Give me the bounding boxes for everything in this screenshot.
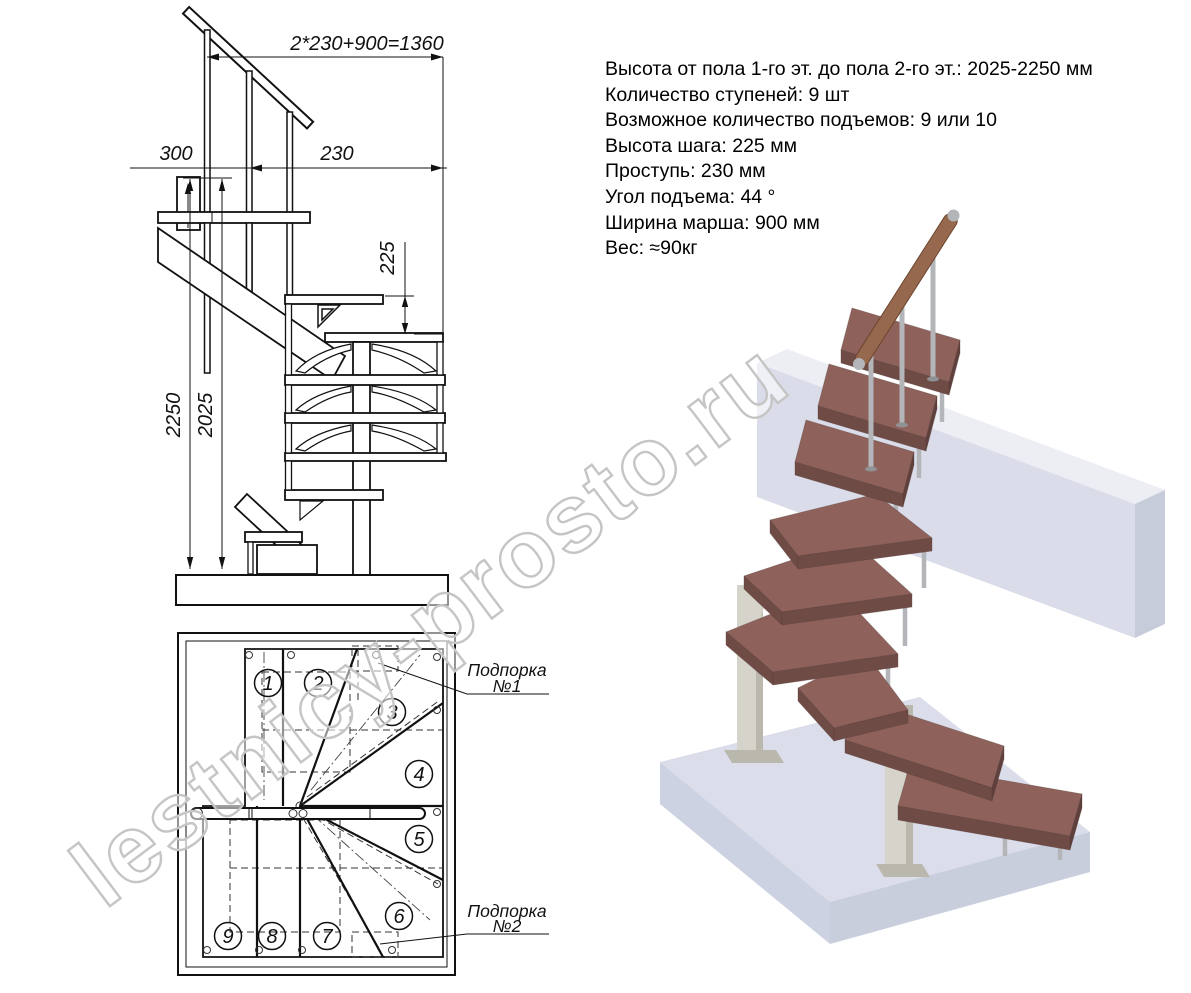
render-3d bbox=[660, 210, 1165, 945]
spec-line: Количество ступеней: 9 шт bbox=[605, 83, 1145, 109]
dim-rise: 225 bbox=[377, 240, 399, 275]
support2-number: №2 bbox=[493, 916, 522, 936]
spec-line: Проступь: 230 мм bbox=[605, 159, 1145, 185]
dim-height-max: 2250 bbox=[163, 393, 185, 439]
step-number: 7 bbox=[321, 926, 333, 948]
dim-total-width: 2*230+900=1360 bbox=[289, 33, 444, 55]
spec-line: Вес: ≈90кг bbox=[605, 236, 1145, 262]
spec-line: Высота от пола 1-го эт. до пола 2-го эт.… bbox=[605, 57, 1145, 83]
spec-line: Ширина марша: 900 мм bbox=[605, 211, 1145, 237]
dim-height-min: 2025 bbox=[195, 392, 217, 438]
step-number: 9 bbox=[222, 926, 233, 948]
spec-line: Угол подъема: 44 ° bbox=[605, 185, 1145, 211]
spec-line: Высота шага: 225 мм bbox=[605, 134, 1145, 160]
elevation-side-view: 2*230+900=1360 300 230 bbox=[130, 7, 448, 605]
support1-number: №1 bbox=[493, 676, 522, 696]
elevation-baluster bbox=[287, 112, 293, 295]
step-number: 6 bbox=[393, 906, 405, 928]
spec-line: Возможное количество подъемов: 9 или 10 bbox=[605, 108, 1145, 134]
step-number: 5 bbox=[413, 829, 425, 851]
top-landing bbox=[158, 212, 310, 223]
step-number: 4 bbox=[413, 764, 424, 786]
specs-panel: Высота от пола 1-го эт. до пола 2-го эт.… bbox=[605, 57, 1145, 262]
dim-tread-depth: 230 bbox=[319, 143, 353, 165]
dim-offset: 300 bbox=[159, 143, 192, 165]
support2-callout: Подпорка №2 bbox=[380, 901, 549, 944]
step-number: 8 bbox=[266, 926, 277, 948]
